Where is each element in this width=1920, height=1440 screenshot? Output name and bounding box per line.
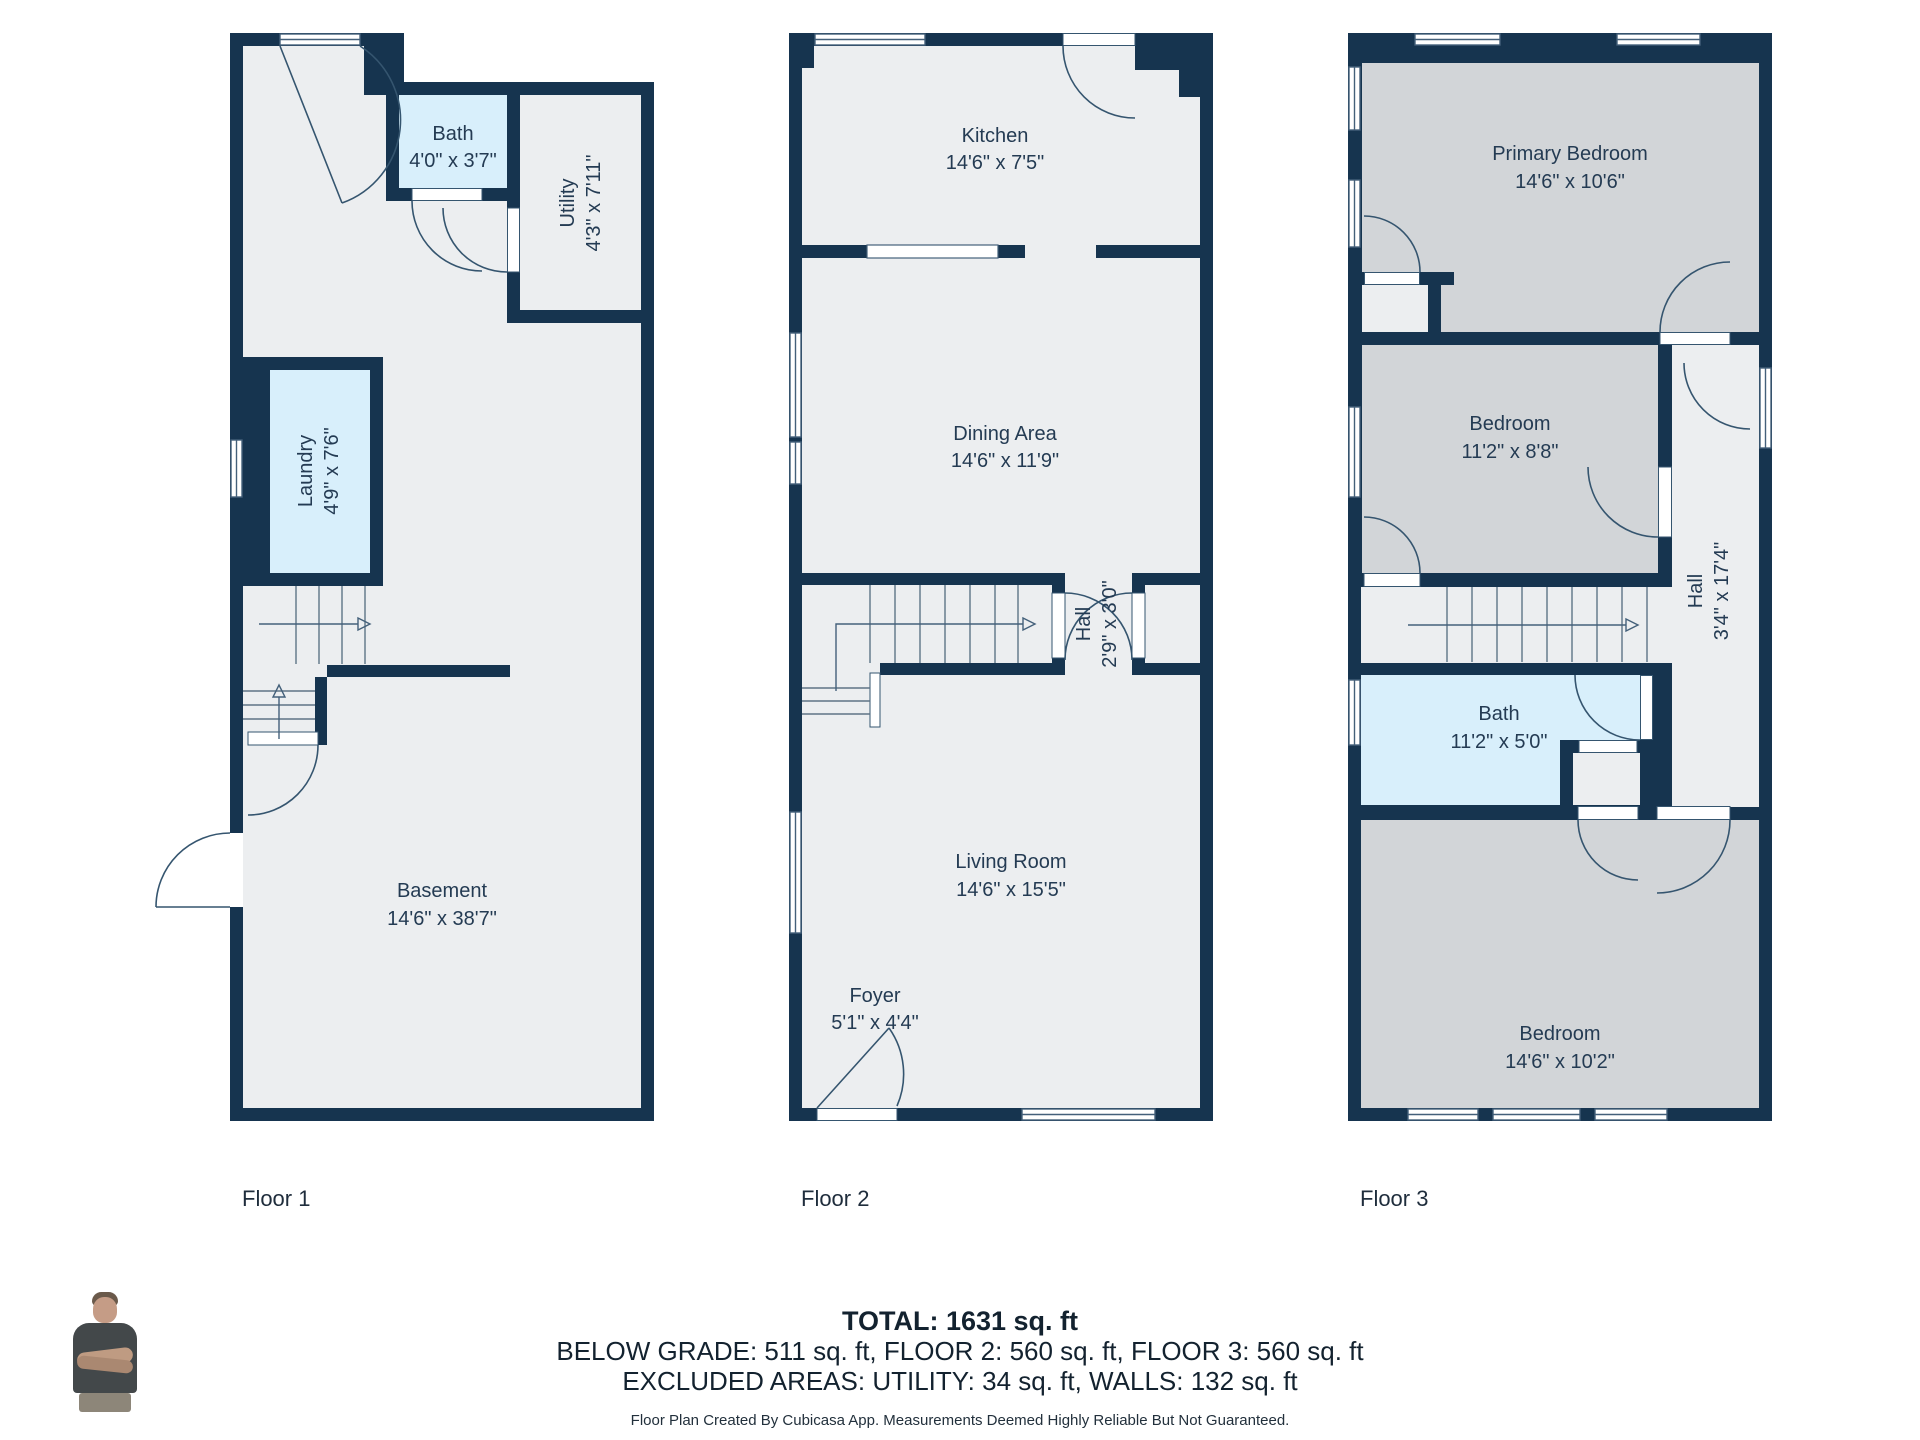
disclaimer: Floor Plan Created By Cubicasa App. Meas… [0, 1412, 1920, 1429]
agent-pants [79, 1393, 131, 1412]
room-label-dining: Dining Area [953, 423, 1057, 445]
excluded-areas: EXCLUDED AREAS: UTILITY: 34 sq. ft, WALL… [0, 1366, 1920, 1396]
room-dims-bath-f1: 4'0" x 3'7" [409, 150, 496, 172]
room-laundry [270, 370, 370, 573]
area-by-floor: BELOW GRADE: 511 sq. ft, FLOOR 2: 560 sq… [0, 1336, 1920, 1366]
room-label-hall-f2: Hall [1073, 607, 1095, 641]
room-dims-laundry: 4'9" x 7'6" [321, 427, 343, 514]
agent-face [93, 1297, 117, 1323]
room-label-bedroom2: Bedroom [1469, 413, 1550, 435]
room-label-laundry: Laundry [295, 435, 317, 507]
floor-3-caption: Floor 3 [1360, 1186, 1428, 1212]
room-label-bedroom3: Bedroom [1519, 1023, 1600, 1045]
agent-photo [64, 1292, 144, 1412]
room-dims-bedroom2: 11'2" x 8'8" [1461, 441, 1558, 463]
room-dims-kitchen: 14'6" x 7'5" [946, 152, 1045, 174]
room-label-bath-f1: Bath [432, 123, 473, 145]
floor-1-caption: Floor 1 [242, 1186, 310, 1212]
room-dims-bedroom3: 14'6" x 10'2" [1505, 1051, 1615, 1073]
room-dims-hall-f3: 3'4" x 17'4" [1711, 542, 1733, 641]
room-dims-hall-f2: 2'9" x 3'0" [1099, 580, 1121, 667]
room-dims-primary: 14'6" x 10'6" [1515, 171, 1625, 193]
room-label-utility: Utility [557, 179, 579, 228]
floor-2-plan: Kitchen 14'6" x 7'5" Dining Area 14'6" x… [789, 33, 1213, 1121]
total-area: TOTAL: 1631 sq. ft [0, 1306, 1920, 1336]
room-dims-living: 14'6" x 15'5" [956, 879, 1066, 901]
room-dims-dining: 14'6" x 11'9" [951, 450, 1059, 472]
floor-3-plan: Primary Bedroom 14'6" x 10'6" Bedroom 11… [1348, 33, 1772, 1121]
room-label-hall-f3: Hall [1685, 574, 1707, 608]
closet-primary [1362, 285, 1428, 332]
room-dims-basement: 14'6" x 38'7" [387, 908, 497, 930]
floor-2-walls [789, 33, 1213, 1121]
floor-1-plan: Bath 4'0" x 3'7" Utility 4'3" x 7'11" La… [230, 33, 654, 1121]
room-label-living: Living Room [955, 851, 1066, 873]
room-dims-bath-f3: 11'2" x 5'0" [1450, 731, 1547, 753]
room-dims-foyer: 5'1" x 4'4" [831, 1012, 918, 1034]
room-label-foyer: Foyer [849, 985, 900, 1007]
room-label-primary: Primary Bedroom [1492, 143, 1648, 165]
room-label-bath-f3: Bath [1478, 703, 1519, 725]
floor-2-caption: Floor 2 [801, 1186, 869, 1212]
room-dims-utility: 4'3" x 7'11" [583, 154, 605, 251]
door-arc-exterior [156, 833, 230, 907]
area-summary: TOTAL: 1631 sq. ft BELOW GRADE: 511 sq. … [0, 1306, 1920, 1429]
room-label-kitchen: Kitchen [962, 125, 1029, 147]
room-label-basement: Basement [397, 880, 487, 902]
closet-linen [1573, 753, 1640, 805]
